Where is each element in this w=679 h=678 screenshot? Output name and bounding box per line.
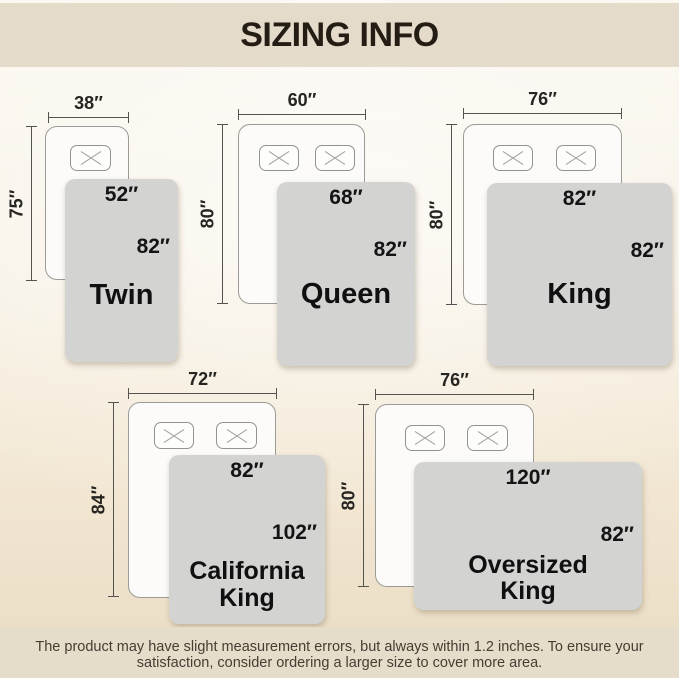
bed-width-label: 60″ [288, 90, 317, 111]
blanket-width-label: 120″ [414, 466, 642, 490]
page-title: SIZING INFO [240, 16, 439, 55]
bed-length-label: 80″ [198, 200, 219, 229]
pillow-icon [405, 425, 445, 451]
blanket-length-label: 82″ [631, 239, 664, 263]
size-name: Queen [278, 278, 414, 311]
pillow-icon [467, 425, 508, 451]
pillow-icon [315, 145, 355, 171]
pillow-x-icon [217, 423, 256, 448]
pillow-x-icon [406, 426, 444, 450]
blanket-width-label: 82″ [487, 187, 672, 211]
pillow-x-icon [557, 146, 595, 170]
blanket-width-label: 82″ [169, 459, 325, 483]
sizing-info-diagram: SIZING INFO 38″ 75″ 52″ 82″ Twin 60″ 80″ [0, 0, 679, 678]
bed-width-dimension-line: 72″ [128, 393, 277, 394]
pillow-icon [259, 145, 299, 171]
pillow-icon [154, 422, 194, 449]
bed-length-dimension-line: 80″ [451, 124, 452, 305]
bed-width-label: 72″ [188, 369, 217, 390]
bed-length-dimension-line: 84″ [113, 402, 114, 597]
pillow-x-icon [155, 423, 193, 448]
blanket-length-label: 82″ [374, 238, 407, 262]
bed-length-label: 75″ [7, 189, 28, 218]
pillow-icon [216, 422, 257, 449]
pillow-x-icon [468, 426, 507, 450]
pillow-icon [556, 145, 596, 171]
bed-length-dimension-line: 80″ [363, 404, 364, 587]
size-name: Oversized King [443, 552, 613, 604]
pillow-x-icon [260, 146, 298, 170]
blanket-width-label: 68″ [277, 186, 415, 210]
bed-length-label: 80″ [339, 481, 360, 510]
blanket-california-king: 82″ 102″ California King [169, 455, 325, 624]
bed-width-dimension-line: 76″ [375, 394, 534, 395]
bed-width-label: 38″ [74, 93, 103, 114]
blanket-width-label: 52″ [65, 183, 178, 207]
pillow-x-icon [71, 146, 110, 170]
blanket-oversized-king: 120″ 82″ Oversized King [414, 462, 642, 610]
bed-length-dimension-line: 75″ [31, 126, 32, 281]
footer-note-band: The product may have slight measurement … [0, 627, 679, 678]
blanket-length-label: 82″ [137, 235, 170, 259]
pillow-icon [493, 145, 533, 171]
size-name: Twin [67, 279, 177, 312]
footer-note-line-2: satisfaction, consider ordering a larger… [137, 655, 542, 671]
blanket-queen: 68″ 82″ Queen [277, 182, 415, 366]
pillow-x-icon [494, 146, 532, 170]
bed-width-label: 76″ [528, 89, 557, 110]
bed-length-label: 80″ [427, 200, 448, 229]
size-name: California King [172, 558, 322, 612]
bed-length-dimension-line: 80″ [222, 124, 223, 304]
blanket-twin: 52″ 82″ Twin [65, 179, 178, 362]
bed-width-dimension-line: 76″ [463, 113, 622, 114]
header-band: SIZING INFO [0, 3, 679, 67]
bed-width-dimension-line: 38″ [48, 117, 129, 118]
pillow-x-icon [316, 146, 354, 170]
footer-note-line-1: The product may have slight measurement … [35, 639, 643, 655]
size-name: King [510, 278, 650, 311]
blanket-length-label: 82″ [601, 523, 634, 547]
bed-length-label: 84″ [89, 485, 110, 514]
blanket-length-label: 102″ [272, 521, 317, 545]
bed-width-label: 76″ [440, 370, 469, 391]
blanket-king: 82″ 82″ King [487, 183, 672, 366]
pillow-icon [70, 145, 111, 171]
bed-width-dimension-line: 60″ [238, 114, 366, 115]
